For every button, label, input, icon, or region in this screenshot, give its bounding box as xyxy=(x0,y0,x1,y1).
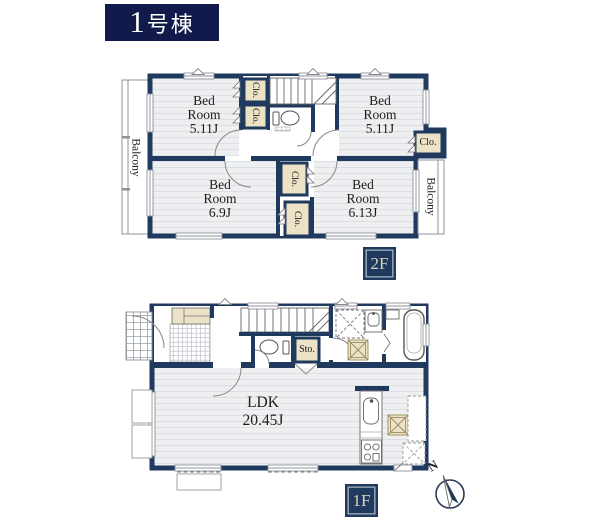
balcony-left-label: Balcony xyxy=(128,123,143,193)
balcony-right-label: Balcony xyxy=(423,162,438,232)
room-label-bedroom-tr: Bed Room5.11J xyxy=(355,94,405,136)
closet-label-2: Clo. xyxy=(249,101,261,131)
room-label-bedroom-tl: Bed Room5.11J xyxy=(179,94,229,136)
room-label-bedroom-br: Bed Room6.13J xyxy=(338,178,388,220)
closet-label-5: Clo. xyxy=(410,137,446,148)
stairs-2f xyxy=(270,78,336,104)
floor-plan-page: 1号棟 xyxy=(0,0,600,526)
stairs-1f xyxy=(241,308,329,332)
floor-hatch-kitchen xyxy=(388,415,408,435)
room-label-bedroom-bl: Bed Room6.9J xyxy=(195,178,245,220)
porch xyxy=(126,312,152,360)
stove-icon xyxy=(362,440,382,463)
fridge-space xyxy=(408,396,426,441)
terrace-step xyxy=(177,472,318,490)
floor-badge-2f: 2F xyxy=(363,247,396,280)
washer-pan xyxy=(336,310,364,338)
floor-badge-1f: 1F xyxy=(345,484,378,517)
storage-label: Sto. xyxy=(292,344,322,355)
building-title: 1号棟 xyxy=(105,4,219,41)
wash-sink xyxy=(365,310,382,332)
pantry-space xyxy=(403,443,425,464)
closet-label-4: Clo. xyxy=(291,204,303,234)
toilet-icon-1f xyxy=(260,340,289,354)
floor-plan-2f xyxy=(120,66,456,244)
closet-label-3: Clo. xyxy=(288,164,300,194)
floor-hatch-washroom xyxy=(348,340,368,360)
room-label-ldk: LDK20.45J xyxy=(213,394,313,430)
